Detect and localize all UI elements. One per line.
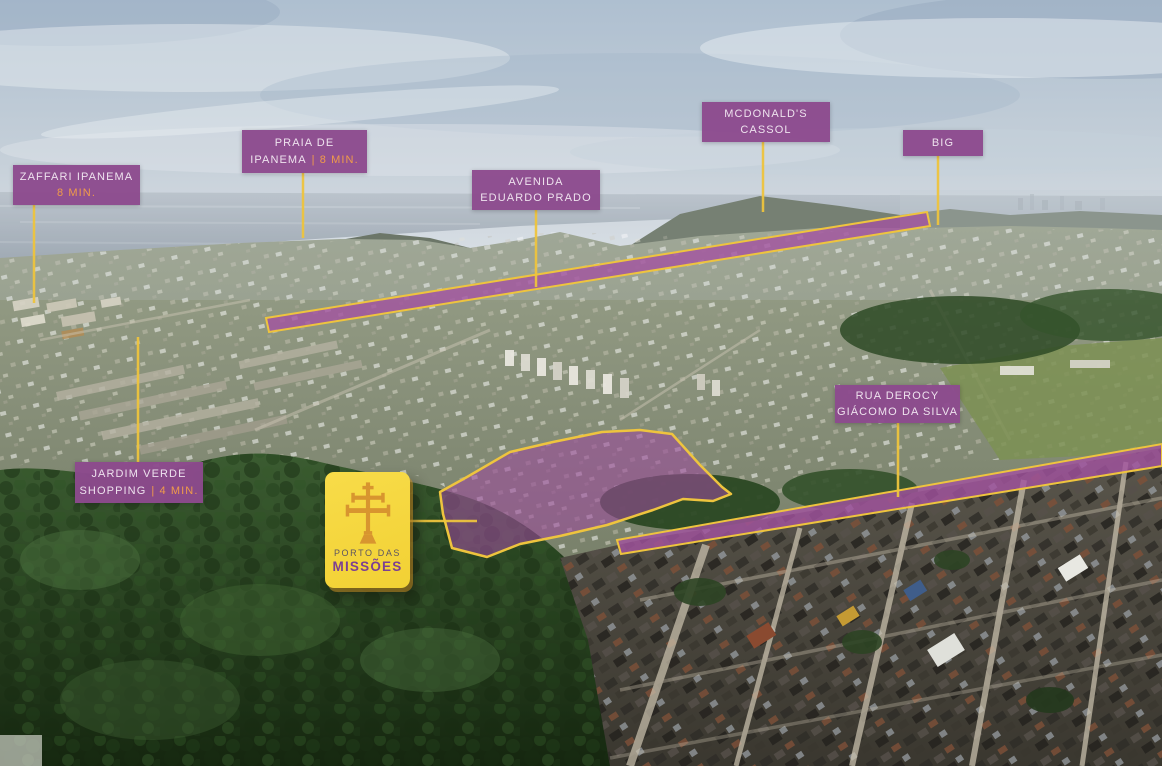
map-label-praia-de-ipanema: PRAIA DE IPANEMA| 8 MIN. <box>242 130 367 173</box>
label-line1: BIG <box>932 135 954 152</box>
map-label-jardim-verde-shopping: JARDIM VERDE SHOPPING| 4 MIN. <box>75 462 203 503</box>
map-label-big: BIG <box>903 130 983 156</box>
label-line1: PRAIA DE <box>275 135 335 152</box>
label-line2: SHOPPING <box>80 483 147 500</box>
aerial-location-map: ZAFFARI IPANEMA 8 MIN. PRAIA DE IPANEMA|… <box>0 0 1162 766</box>
map-label-mcdonalds-cassol: MCDONALD'S CASSOL <box>702 102 830 142</box>
label-line1: JARDIM VERDE <box>91 466 186 483</box>
logo-top-line: PORTO DAS <box>334 548 401 558</box>
map-label-rua-derocy: RUA DEROCY GIÁCOMO DA SILVA <box>835 385 960 423</box>
label-line2: IPANEMA <box>250 152 306 169</box>
label-line2: CASSOL <box>740 122 791 139</box>
label-line1: AVENIDA <box>508 174 563 191</box>
map-label-zaffari-ipanema: ZAFFARI IPANEMA 8 MIN. <box>13 165 140 205</box>
label-line2: GIÁCOMO DA SILVA <box>837 404 958 421</box>
label-line1: ZAFFARI IPANEMA <box>20 169 133 186</box>
aerial-photo-background <box>0 0 1162 766</box>
label-line2: EDUARDO PRADO <box>480 190 591 207</box>
label-line1: RUA DEROCY <box>856 388 940 405</box>
label-time: | 4 MIN. <box>151 483 198 500</box>
porto-das-missoes-logo-card: PORTO DAS MISSÕES <box>325 472 410 588</box>
label-time: | 8 MIN. <box>312 152 359 169</box>
logo-name: MISSÕES <box>333 559 403 574</box>
caravaca-cross-icon <box>344 481 392 545</box>
caravaca-cross-graphic <box>344 481 392 545</box>
map-label-avenida-eduardo-prado: AVENIDA EDUARDO PRADO <box>472 170 600 210</box>
label-time: 8 MIN. <box>57 185 96 202</box>
label-line1: MCDONALD'S <box>724 106 807 123</box>
